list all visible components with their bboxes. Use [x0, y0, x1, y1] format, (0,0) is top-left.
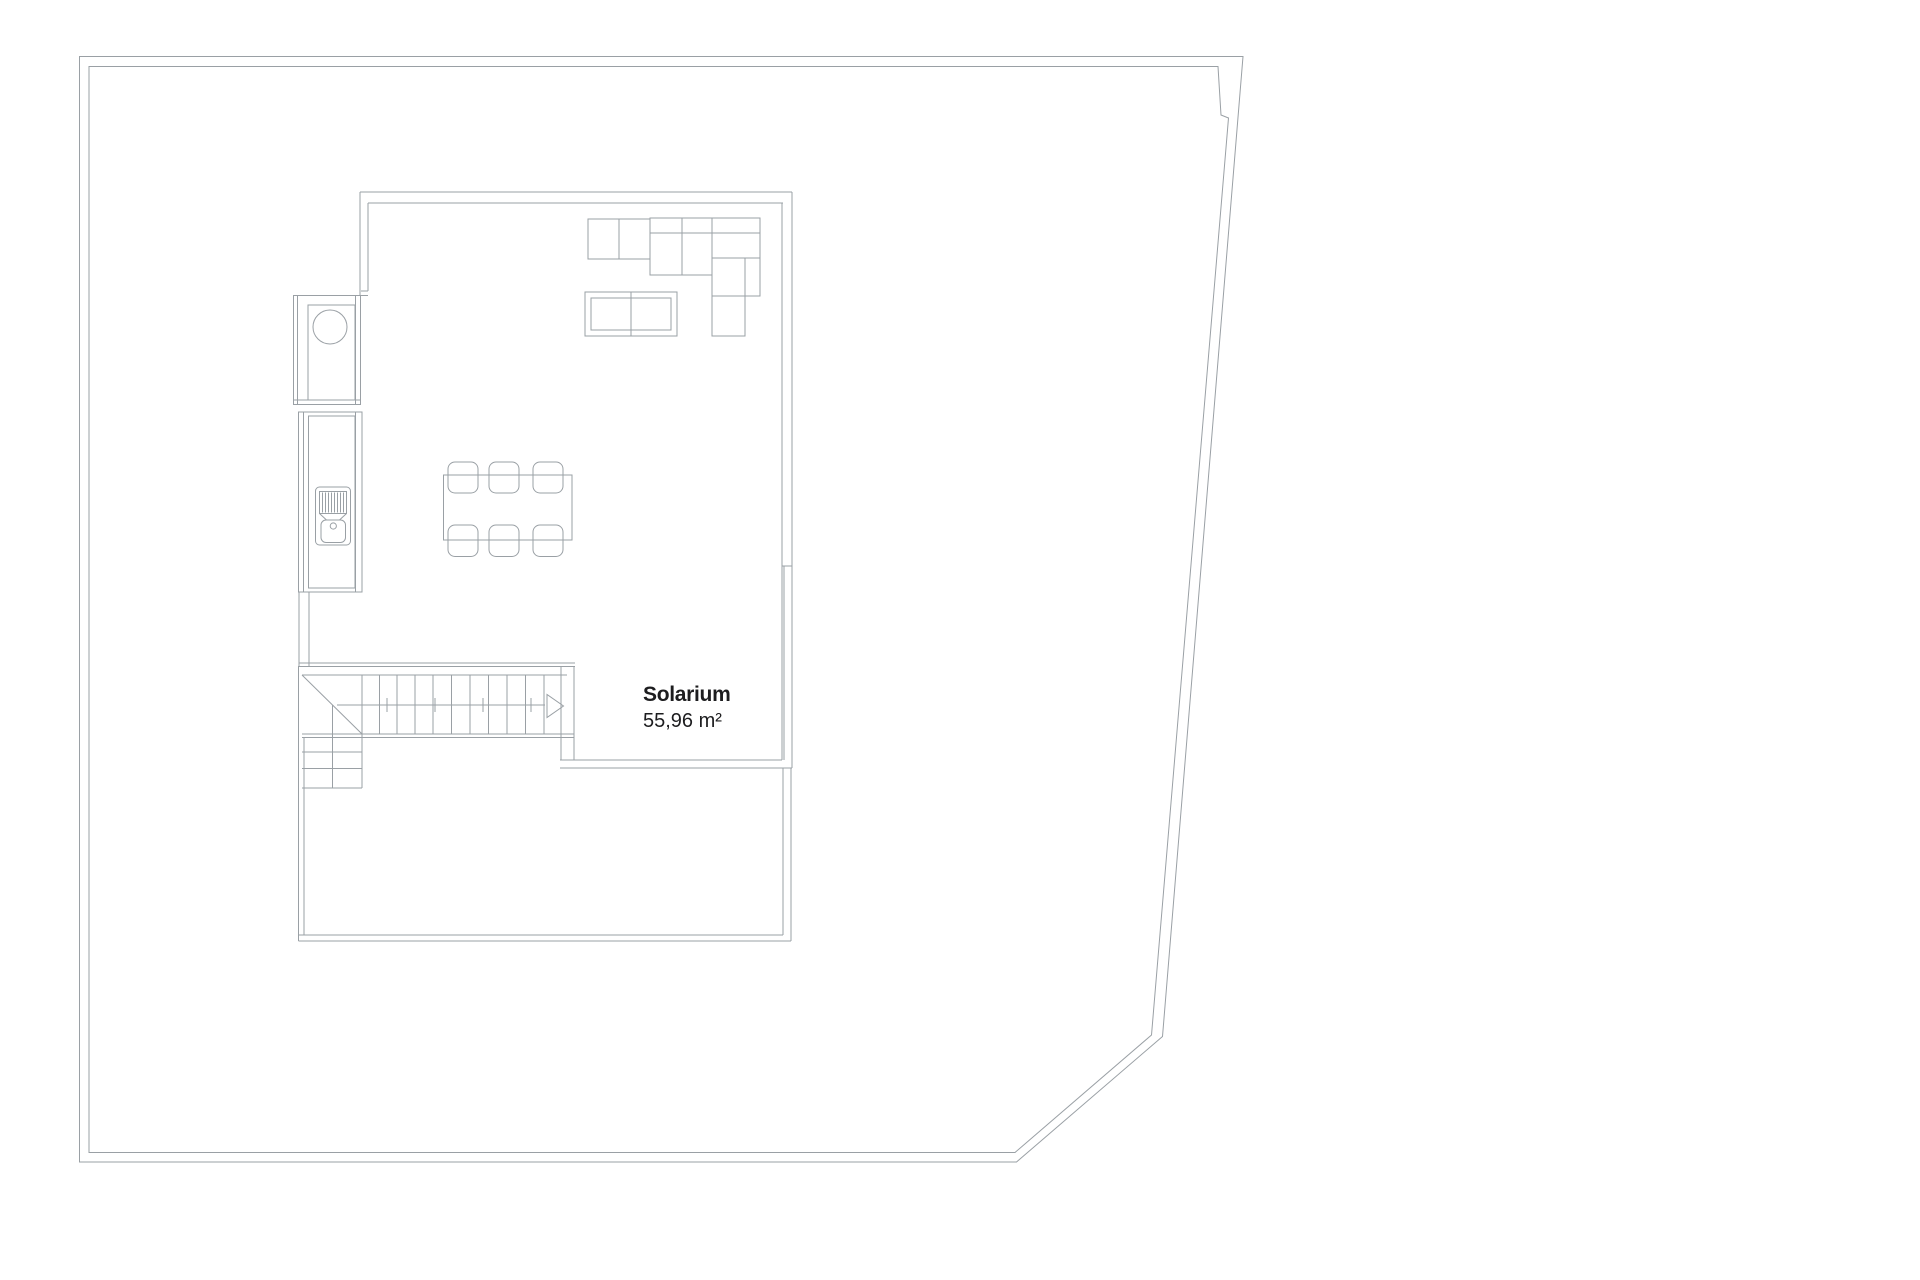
stair-top-wall: [299, 663, 576, 667]
stair-walkline: [333, 698, 546, 788]
sofa: [588, 218, 760, 336]
bottom-wall: [560, 760, 792, 768]
dining-table: [444, 462, 573, 557]
stair-treads: [302, 675, 574, 738]
plot-outline-outer: [80, 57, 1244, 1163]
plot-outline-inner: [89, 67, 1229, 1153]
stair-right-wall: [561, 666, 574, 760]
dining-chair: [533, 525, 563, 557]
kitchen-lower-wall-lines: [304, 412, 356, 592]
stairs: [302, 675, 574, 788]
terrace-right-edge: [783, 768, 791, 941]
sink-icon: [316, 487, 351, 545]
coffee-table: [585, 292, 677, 336]
left-wall-upper: [360, 192, 368, 295]
dining-chair: [489, 525, 519, 557]
left-wall-mid: [299, 592, 309, 666]
top-wall: [360, 192, 792, 203]
floor-plan: [0, 0, 1920, 1280]
terrace-left-edge: [299, 666, 305, 941]
property-boundary: [80, 57, 1244, 1163]
dining-chair: [489, 462, 519, 493]
dining-chair: [533, 462, 563, 493]
terrace-bottom-edge: [299, 935, 792, 941]
round-basin-icon: [313, 310, 347, 344]
kitchen-upper-cabinet: [294, 296, 361, 405]
room-area: 55,96 m²: [643, 708, 730, 734]
dining-chair: [448, 462, 478, 493]
kitchen-upper-wall-lines: [294, 296, 369, 405]
room-label: Solarium: [643, 682, 730, 708]
furniture: [444, 218, 761, 557]
dining-table-top: [444, 475, 573, 540]
dining-chair: [448, 525, 478, 557]
room-walls: [299, 192, 793, 941]
room-label-group: Solarium 55,96 m²: [643, 682, 730, 734]
kitchen-unit: [294, 296, 369, 593]
right-wall-junction: [782, 566, 792, 760]
